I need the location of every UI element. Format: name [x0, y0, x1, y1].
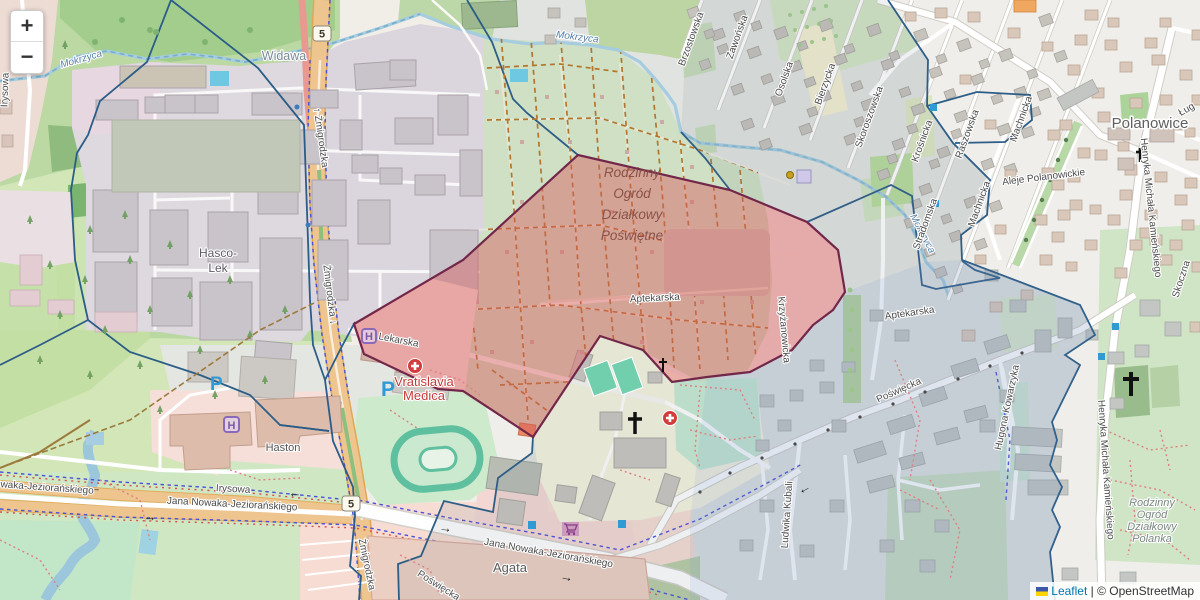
svg-text:→: → — [144, 509, 157, 524]
svg-text:Polanka: Polanka — [1132, 533, 1172, 545]
svg-text:Ogród: Ogród — [613, 186, 651, 201]
svg-text:Rodzinny: Rodzinny — [1129, 497, 1176, 509]
svg-text:P: P — [210, 374, 223, 395]
svg-text:Irysowa: Irysowa — [0, 72, 12, 107]
svg-text:Działkowy: Działkowy — [1127, 521, 1178, 533]
svg-text:Poświętne: Poświętne — [601, 228, 663, 243]
svg-text:→: → — [438, 519, 453, 536]
svg-text:Lek: Lek — [208, 261, 228, 275]
svg-text:H: H — [365, 331, 373, 343]
svg-text:Medica: Medica — [403, 388, 446, 403]
svg-text:Hasco-: Hasco- — [199, 246, 237, 260]
svg-text:Polanowice: Polanowice — [1112, 115, 1189, 132]
svg-text:5: 5 — [319, 29, 325, 41]
svg-text:Agata: Agata — [493, 560, 528, 575]
svg-text:Rodzinny: Rodzinny — [604, 165, 662, 180]
svg-text:P: P — [381, 378, 395, 401]
svg-text:Działkowy: Działkowy — [602, 207, 664, 222]
svg-text:5: 5 — [348, 499, 354, 511]
svg-text:←: ← — [289, 485, 302, 500]
svg-text:Irysowa: Irysowa — [216, 483, 251, 496]
svg-text:Ogród: Ogród — [1137, 509, 1168, 521]
svg-text:Vratislavia: Vratislavia — [394, 374, 454, 389]
svg-text:H: H — [228, 420, 236, 432]
svg-text:Widawa: Widawa — [262, 49, 307, 63]
svg-text:Haston: Haston — [266, 442, 301, 454]
